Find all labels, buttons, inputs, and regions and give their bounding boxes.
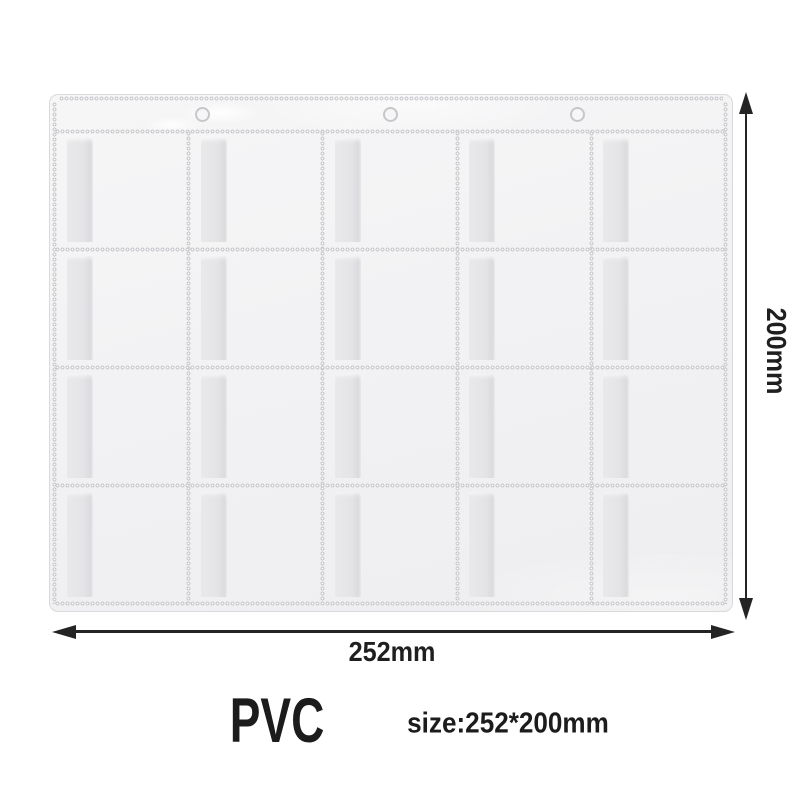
vertical-arrow-line <box>745 108 748 604</box>
pocket-flap <box>335 256 361 360</box>
pocket-flap <box>603 492 629 596</box>
pocket-flap <box>201 374 227 478</box>
size-label: size:252*200mm <box>407 708 609 741</box>
stitch-grid-bottom <box>55 601 726 606</box>
pocket-flap <box>67 256 93 360</box>
pocket-flap <box>201 256 227 360</box>
material-label: PVC <box>230 685 325 757</box>
pocket-flap <box>67 492 93 596</box>
stitch-grid-top <box>55 129 726 134</box>
pocket-flap <box>201 138 227 242</box>
height-dimension-label: 200mm <box>760 308 792 395</box>
arrow-right-icon <box>711 625 735 639</box>
plastic-sheen <box>50 95 732 611</box>
binder-hole <box>195 107 210 122</box>
pocket-flap <box>335 138 361 242</box>
pocket-flap <box>603 374 629 478</box>
pocket-flap <box>469 256 495 360</box>
pocket-flap <box>469 138 495 242</box>
pocket-flap <box>469 492 495 596</box>
pocket-flap <box>201 492 227 596</box>
pvc-sheet <box>49 94 733 612</box>
stitch-left-edge <box>52 102 57 604</box>
pocket-flap <box>603 256 629 360</box>
pocket-flap <box>335 492 361 596</box>
binder-hole <box>570 107 585 122</box>
binder-hole <box>383 107 398 122</box>
pocket-flap <box>67 138 93 242</box>
product-image: 200mm 252mm PVC size:252*200mm <box>0 0 800 800</box>
pocket-flap <box>469 374 495 478</box>
arrow-down-icon <box>739 598 753 620</box>
pocket-flap <box>67 374 93 478</box>
width-dimension-label: 252mm <box>349 636 436 668</box>
stitch-row-line <box>55 365 726 370</box>
horizontal-arrow-line <box>73 630 713 633</box>
pocket-flap <box>335 374 361 478</box>
stitch-right-edge <box>723 102 728 604</box>
stitch-row-line <box>55 247 726 252</box>
pocket-flap <box>603 138 629 242</box>
stitch-top-edge <box>59 96 723 101</box>
stitch-row-line <box>55 483 726 488</box>
